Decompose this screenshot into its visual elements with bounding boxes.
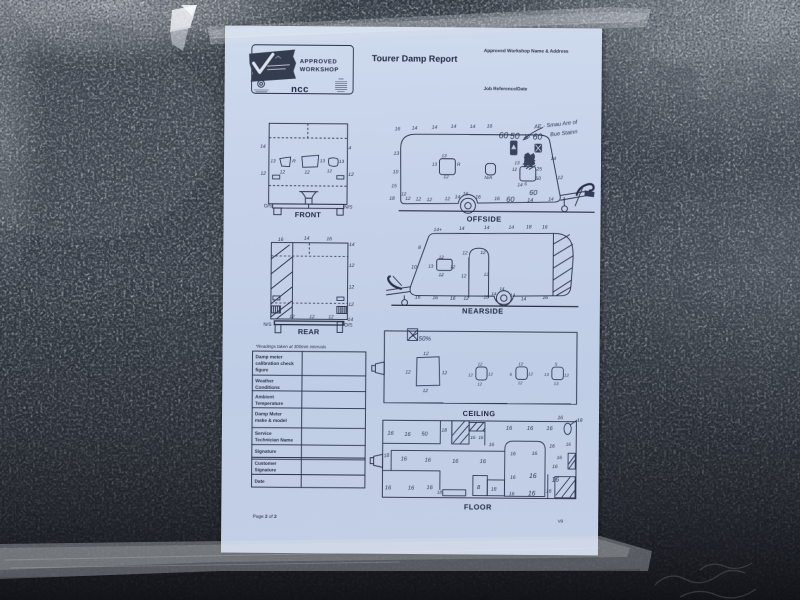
svg-text:Temperature: Temperature <box>255 401 283 406</box>
svg-text:13: 13 <box>554 381 559 386</box>
svg-text:figure: figure <box>255 367 268 372</box>
svg-text:13: 13 <box>432 161 438 166</box>
svg-text:12: 12 <box>468 372 473 377</box>
svg-text:16: 16 <box>487 124 493 130</box>
svg-text:60: 60 <box>529 188 537 197</box>
svg-text:18: 18 <box>577 418 583 424</box>
svg-text:12: 12 <box>477 381 482 386</box>
svg-text:REAR: REAR <box>298 327 320 336</box>
svg-text:16: 16 <box>426 485 433 491</box>
svg-text:12: 12 <box>557 175 563 181</box>
svg-text:16: 16 <box>542 224 548 230</box>
svg-text:50%: 50% <box>419 335 432 342</box>
svg-text:18: 18 <box>389 196 395 202</box>
svg-text:25: 25 <box>535 166 542 172</box>
svg-text:16: 16 <box>566 442 572 447</box>
svg-text:10: 10 <box>411 264 417 270</box>
svg-text:Date: Date <box>254 479 265 484</box>
svg-text:R: R <box>292 159 296 165</box>
svg-text:ncc: ncc <box>291 84 309 95</box>
svg-text:13: 13 <box>514 160 520 165</box>
svg-text:12: 12 <box>423 351 429 357</box>
svg-text:16: 16 <box>510 475 516 481</box>
svg-text:12: 12 <box>349 263 355 269</box>
svg-text:16: 16 <box>552 464 558 470</box>
svg-text:50: 50 <box>510 131 520 141</box>
svg-text:16: 16 <box>432 295 438 301</box>
svg-text:16: 16 <box>452 459 459 465</box>
svg-text:60: 60 <box>533 131 543 141</box>
svg-text:O/S: O/S <box>264 203 273 209</box>
svg-text:16: 16 <box>527 426 534 432</box>
svg-text:16: 16 <box>510 451 516 457</box>
svg-text:14+: 14+ <box>433 227 442 233</box>
svg-text:12: 12 <box>463 296 469 302</box>
svg-text:12: 12 <box>462 250 468 256</box>
svg-text:*Readings taken at 300mm inter: *Readings taken at 300mm intervals <box>256 344 327 350</box>
svg-text:CEILING: CEILING <box>463 409 496 418</box>
svg-text:13: 13 <box>270 158 276 163</box>
svg-text:Damp meter: Damp meter <box>255 354 282 359</box>
svg-text:12: 12 <box>405 369 411 375</box>
svg-text:Signature: Signature <box>255 467 277 472</box>
svg-text:FLOOR: FLOOR <box>464 502 492 511</box>
svg-text:4: 4 <box>348 146 351 152</box>
svg-text:16: 16 <box>278 237 284 243</box>
svg-text:12: 12 <box>564 373 569 378</box>
svg-text:18: 18 <box>526 224 532 230</box>
svg-text:13: 13 <box>442 153 448 158</box>
svg-text:16: 16 <box>551 477 559 484</box>
svg-text:16: 16 <box>542 295 548 301</box>
svg-text:14: 14 <box>527 198 533 204</box>
svg-text:12: 12 <box>260 171 266 177</box>
svg-text:15: 15 <box>391 183 397 189</box>
svg-text:14: 14 <box>451 124 457 130</box>
svg-text:16: 16 <box>463 191 469 197</box>
svg-text:14: 14 <box>349 242 355 248</box>
svg-text:16: 16 <box>408 485 415 491</box>
svg-text:14: 14 <box>551 156 557 162</box>
svg-text:14: 14 <box>348 317 354 323</box>
svg-text:12: 12 <box>450 264 456 269</box>
svg-text:12: 12 <box>445 196 451 202</box>
svg-text:16: 16 <box>425 458 432 464</box>
svg-text:60: 60 <box>506 195 515 204</box>
svg-text:Customer: Customer <box>255 461 277 466</box>
svg-text:16: 16 <box>387 431 394 437</box>
svg-text:16: 16 <box>450 296 456 302</box>
svg-text:16: 16 <box>557 455 563 461</box>
svg-text:make & model: make & model <box>255 418 287 423</box>
svg-text:12: 12 <box>405 196 411 202</box>
svg-text:Technician Name: Technician Name <box>255 437 294 442</box>
svg-text:R: R <box>457 162 461 168</box>
svg-text:12: 12 <box>328 314 334 320</box>
svg-text:N/S: N/S <box>263 322 272 328</box>
svg-text:FRONT: FRONT <box>295 210 322 219</box>
svg-text:18: 18 <box>383 453 390 460</box>
svg-text:16: 16 <box>532 451 538 457</box>
svg-text:16: 16 <box>489 442 495 448</box>
svg-text:calibration check: calibration check <box>255 361 294 366</box>
svg-text:N/S: N/S <box>344 204 353 210</box>
svg-text:16: 16 <box>546 489 552 495</box>
svg-text:16: 16 <box>480 459 487 465</box>
svg-text:12: 12 <box>518 380 523 385</box>
svg-text:OFFSIDE: OFFSIDE <box>467 214 502 223</box>
svg-text:13: 13 <box>320 158 326 163</box>
svg-text:14: 14 <box>484 225 490 231</box>
svg-text:16: 16 <box>549 444 555 450</box>
svg-text:12: 12 <box>401 191 407 196</box>
svg-text:12: 12 <box>443 174 449 180</box>
svg-text:8: 8 <box>418 245 421 251</box>
svg-text:13: 13 <box>339 159 345 164</box>
svg-text:16: 16 <box>385 485 392 491</box>
svg-text:14: 14 <box>459 226 465 232</box>
svg-text:16: 16 <box>494 196 500 202</box>
svg-text:12: 12 <box>289 314 295 320</box>
svg-text:12: 12 <box>512 167 518 172</box>
svg-text:12: 12 <box>478 362 483 367</box>
svg-text:18: 18 <box>437 490 442 495</box>
svg-text:16: 16 <box>415 294 421 300</box>
svg-text:12: 12 <box>349 285 355 291</box>
svg-text:V9: V9 <box>558 518 564 523</box>
svg-text:14: 14 <box>491 291 496 296</box>
svg-text:12: 12 <box>461 273 467 279</box>
svg-text:14: 14 <box>521 296 527 302</box>
svg-text:Ambient: Ambient <box>255 394 274 399</box>
svg-text:Approved Workshop Name & Addre: Approved Workshop Name & Address <box>484 48 569 54</box>
svg-text:16: 16 <box>509 491 515 497</box>
svg-text:Page 2 of 2: Page 2 of 2 <box>253 514 277 519</box>
svg-text:14: 14 <box>508 225 514 231</box>
svg-text:14: 14 <box>260 144 266 150</box>
svg-text:18: 18 <box>441 428 447 434</box>
svg-text:16: 16 <box>401 456 408 462</box>
svg-text:16: 16 <box>529 473 537 480</box>
svg-text:14: 14 <box>304 236 310 242</box>
svg-text:16: 16 <box>506 426 513 432</box>
svg-text:O/S: O/S <box>344 322 353 328</box>
svg-text:12: 12 <box>327 168 332 173</box>
svg-text:Tourer Damp Report: Tourer Damp Report <box>372 53 458 64</box>
svg-text:Damp Meter: Damp Meter <box>255 411 282 416</box>
svg-text:16: 16 <box>478 435 484 440</box>
svg-text:12: 12 <box>416 196 422 202</box>
svg-text:16: 16 <box>326 237 332 243</box>
svg-text:APPROVED: APPROVED <box>300 58 338 65</box>
svg-text:Service: Service <box>255 431 272 436</box>
svg-text:N/A: N/A <box>484 175 492 181</box>
svg-text:12: 12 <box>484 272 490 278</box>
svg-text:12: 12 <box>423 388 429 394</box>
svg-text:NEARSIDE: NEARSIDE <box>462 306 503 315</box>
svg-text:14: 14 <box>412 125 418 131</box>
svg-text:16: 16 <box>470 435 476 440</box>
svg-text:Signature: Signature <box>255 449 277 454</box>
svg-text:13: 13 <box>544 372 549 377</box>
svg-text:14: 14 <box>499 286 504 291</box>
svg-text:10: 10 <box>393 169 399 175</box>
svg-text:12: 12 <box>439 255 445 260</box>
svg-text:18: 18 <box>491 487 497 493</box>
svg-text:12: 12 <box>348 302 354 308</box>
svg-text:8: 8 <box>477 484 481 491</box>
svg-text:Conditions: Conditions <box>255 385 280 390</box>
svg-text:16: 16 <box>546 426 553 432</box>
svg-text:12: 12 <box>518 361 523 366</box>
svg-text:14: 14 <box>548 197 554 203</box>
svg-text:Weather: Weather <box>255 378 274 383</box>
svg-text:12: 12 <box>427 197 433 203</box>
svg-text:12: 12 <box>348 172 354 178</box>
svg-text:16: 16 <box>404 432 411 438</box>
svg-text:18: 18 <box>524 134 531 140</box>
svg-text:13: 13 <box>428 263 434 268</box>
svg-text:13: 13 <box>394 151 400 157</box>
svg-text:14: 14 <box>432 125 438 131</box>
svg-text:5: 5 <box>555 361 558 366</box>
svg-text:12: 12 <box>480 250 486 256</box>
svg-text:12: 12 <box>488 371 493 376</box>
svg-text:16: 16 <box>475 194 481 200</box>
svg-text:14: 14 <box>470 124 476 130</box>
svg-text:16: 16 <box>557 415 563 421</box>
svg-text:14: 14 <box>510 293 516 299</box>
svg-text:WORKSHOP: WORKSHOP <box>300 66 339 73</box>
svg-text:12: 12 <box>280 169 286 175</box>
svg-text:50: 50 <box>421 432 428 438</box>
svg-text:60: 60 <box>499 130 509 140</box>
svg-text:6: 6 <box>524 181 527 186</box>
svg-text:16: 16 <box>528 490 536 497</box>
svg-text:Bue Stainn: Bue Stainn <box>550 128 578 138</box>
svg-text:12: 12 <box>528 371 533 376</box>
svg-text:16: 16 <box>483 294 489 300</box>
svg-text:12: 12 <box>309 314 315 320</box>
svg-text:16: 16 <box>395 126 401 132</box>
svg-text:12: 12 <box>442 370 448 376</box>
svg-text:6: 6 <box>510 372 513 377</box>
svg-text:Job Reference/Date: Job Reference/Date <box>484 86 528 91</box>
svg-text:14: 14 <box>455 194 461 200</box>
svg-text:50: 50 <box>535 176 541 182</box>
svg-text:12: 12 <box>304 170 310 176</box>
svg-text:14: 14 <box>517 182 523 188</box>
svg-text:12: 12 <box>439 272 445 277</box>
